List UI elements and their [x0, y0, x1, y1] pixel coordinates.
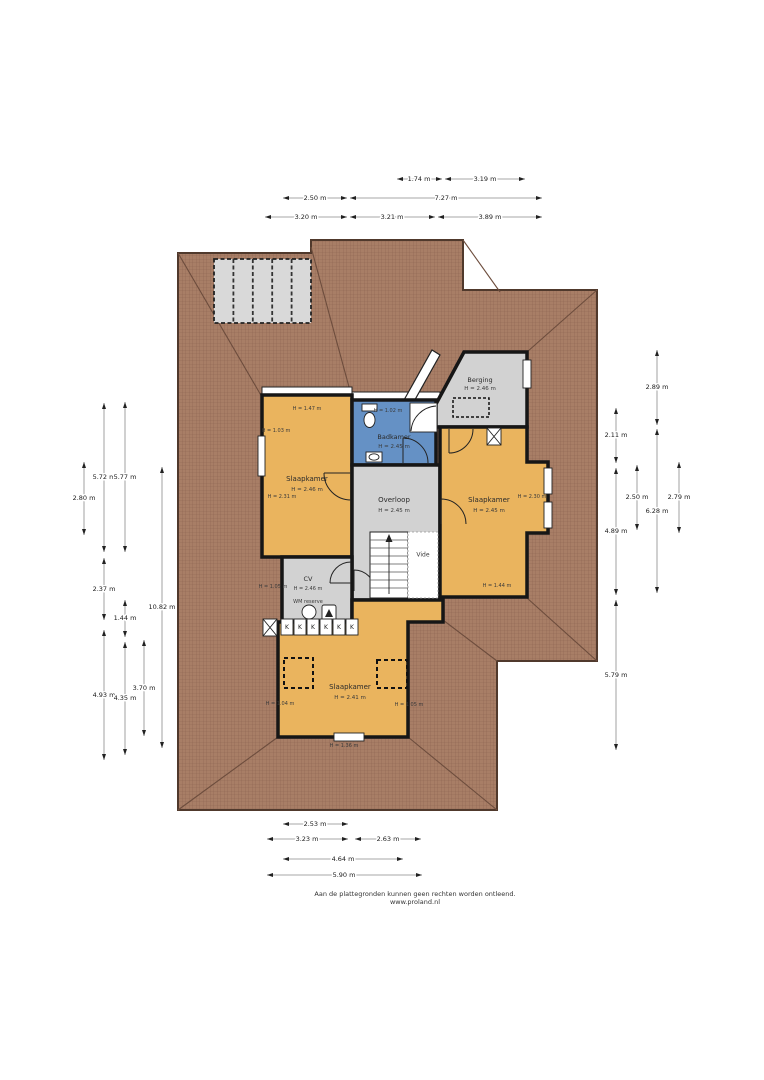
solar-panels [214, 259, 311, 323]
room-name-slaapkamer-right: Slaapkamer [468, 496, 510, 504]
dim-label-r7: 2.79 m [668, 493, 691, 501]
dim-label-r2: 4.89 m [605, 527, 628, 535]
dim-label-l2: 5.72 m [93, 473, 116, 481]
room-height-slaapkamer-right: H = 2.45 m [473, 508, 505, 514]
stairs [370, 532, 408, 598]
knee-height-label: H = 1.44 m [483, 583, 512, 589]
dim-label-t6: 3.21 m [381, 213, 404, 221]
knee-height-label: H = 1.04 m [266, 701, 295, 707]
window [544, 502, 552, 528]
dim-label-t5: 3.20 m [295, 213, 318, 221]
dim-label-l4: 4.93 m [93, 691, 116, 699]
dim-label-l3: 2.37 m [93, 585, 116, 593]
knee-height-label: H = 1.03 m [262, 428, 291, 434]
toilet-icon [364, 413, 375, 428]
shaft-icon [263, 619, 277, 636]
window [334, 733, 364, 741]
room-name-vide: Vide [416, 552, 429, 559]
footer-url: www.proland.nl [390, 898, 440, 906]
floorplan-drawing: K K K K K K Slaapkamer H = 2.46 m H = 1.… [0, 0, 764, 1080]
shaft-icon [487, 428, 501, 445]
dim-label-r4: 2.50 m [626, 493, 649, 501]
room-height-slaapkamer-left: H = 2.46 m [291, 487, 323, 493]
knee-height-label: H = 1.02 m [374, 408, 403, 414]
knee-height-label: H = 1.05 m [395, 702, 424, 708]
room-name-overloop: Overloop [378, 496, 410, 504]
dim-label-l1: 2.80 m [73, 494, 96, 502]
room-name-cv: CV [304, 575, 314, 583]
room-name-badkamer: Badkamer [377, 433, 411, 441]
vide-area [408, 532, 438, 598]
washing-machine-icon [302, 605, 316, 619]
knee-height-label: H = 2.30 m [518, 494, 547, 500]
dim-label-b5: 5.90 m [333, 871, 356, 879]
dim-label-l5: 5.77 m [114, 473, 137, 481]
dim-label-t7: 3.89 m [479, 213, 502, 221]
window [544, 468, 552, 494]
dim-label-r5: 2.89 m [646, 383, 669, 391]
room-name-slaapkamer-left: Slaapkamer [286, 475, 328, 483]
room-height-slaapkamer-bottom: H = 2.41 m [334, 695, 366, 701]
dim-label-t2: 3.19 m [474, 175, 497, 183]
knee-height-label: H = 1.05 m [259, 584, 288, 590]
dim-label-r3: 5.79 m [605, 671, 628, 679]
footer-disclaimer: Aan de plattegronden kunnen geen rechten… [314, 890, 515, 898]
dim-label-l7: 4.35 m [114, 694, 137, 702]
solar-panel-field [214, 259, 311, 323]
room-height-badkamer: H = 2.45 m [378, 444, 410, 450]
room-height-cv: H = 2.46 m [294, 586, 323, 592]
knee-height-label: H = 1.47 m [293, 406, 322, 412]
dim-label-l6: 1.44 m [114, 614, 137, 622]
dim-label-t4: 7.27 m [435, 194, 458, 202]
dim-label-b3: 2.63 m [377, 835, 400, 843]
dim-label-r1: 2.11 m [605, 431, 628, 439]
dim-label-b1: 2.53 m [304, 820, 327, 828]
room-height-berging: H = 2.46 m [464, 386, 496, 392]
dim-label-b4: 4.64 m [332, 855, 355, 863]
window [258, 436, 265, 476]
knee-height-label: H = 1.36 m [330, 743, 359, 749]
floorplan-canvas: K K K K K K Slaapkamer H = 2.46 m H = 1.… [0, 0, 764, 1080]
room-name-slaapkamer-bottom: Slaapkamer [329, 683, 371, 691]
room-height-overloop: H = 2.45 m [378, 508, 410, 514]
dim-label-t3: 2.50 m [304, 194, 327, 202]
room-sub-cv: WM reserve [293, 599, 323, 605]
dim-label-b2: 3.23 m [296, 835, 319, 843]
knee-height-label: H = 2.31 m [268, 494, 297, 500]
sink-basin-icon [369, 454, 379, 460]
dim-label-r6: 6.28 m [646, 507, 669, 515]
dim-label-l9: 10.82 m [148, 603, 175, 611]
footer: Aan de plattegronden kunnen geen rechten… [314, 890, 515, 906]
dim-label-l8: 3.70 m [133, 684, 156, 692]
window [523, 360, 531, 388]
room-name-berging: Berging [467, 376, 492, 384]
shower-icon [410, 403, 437, 432]
dim-label-t1: 1.74 m [408, 175, 431, 183]
